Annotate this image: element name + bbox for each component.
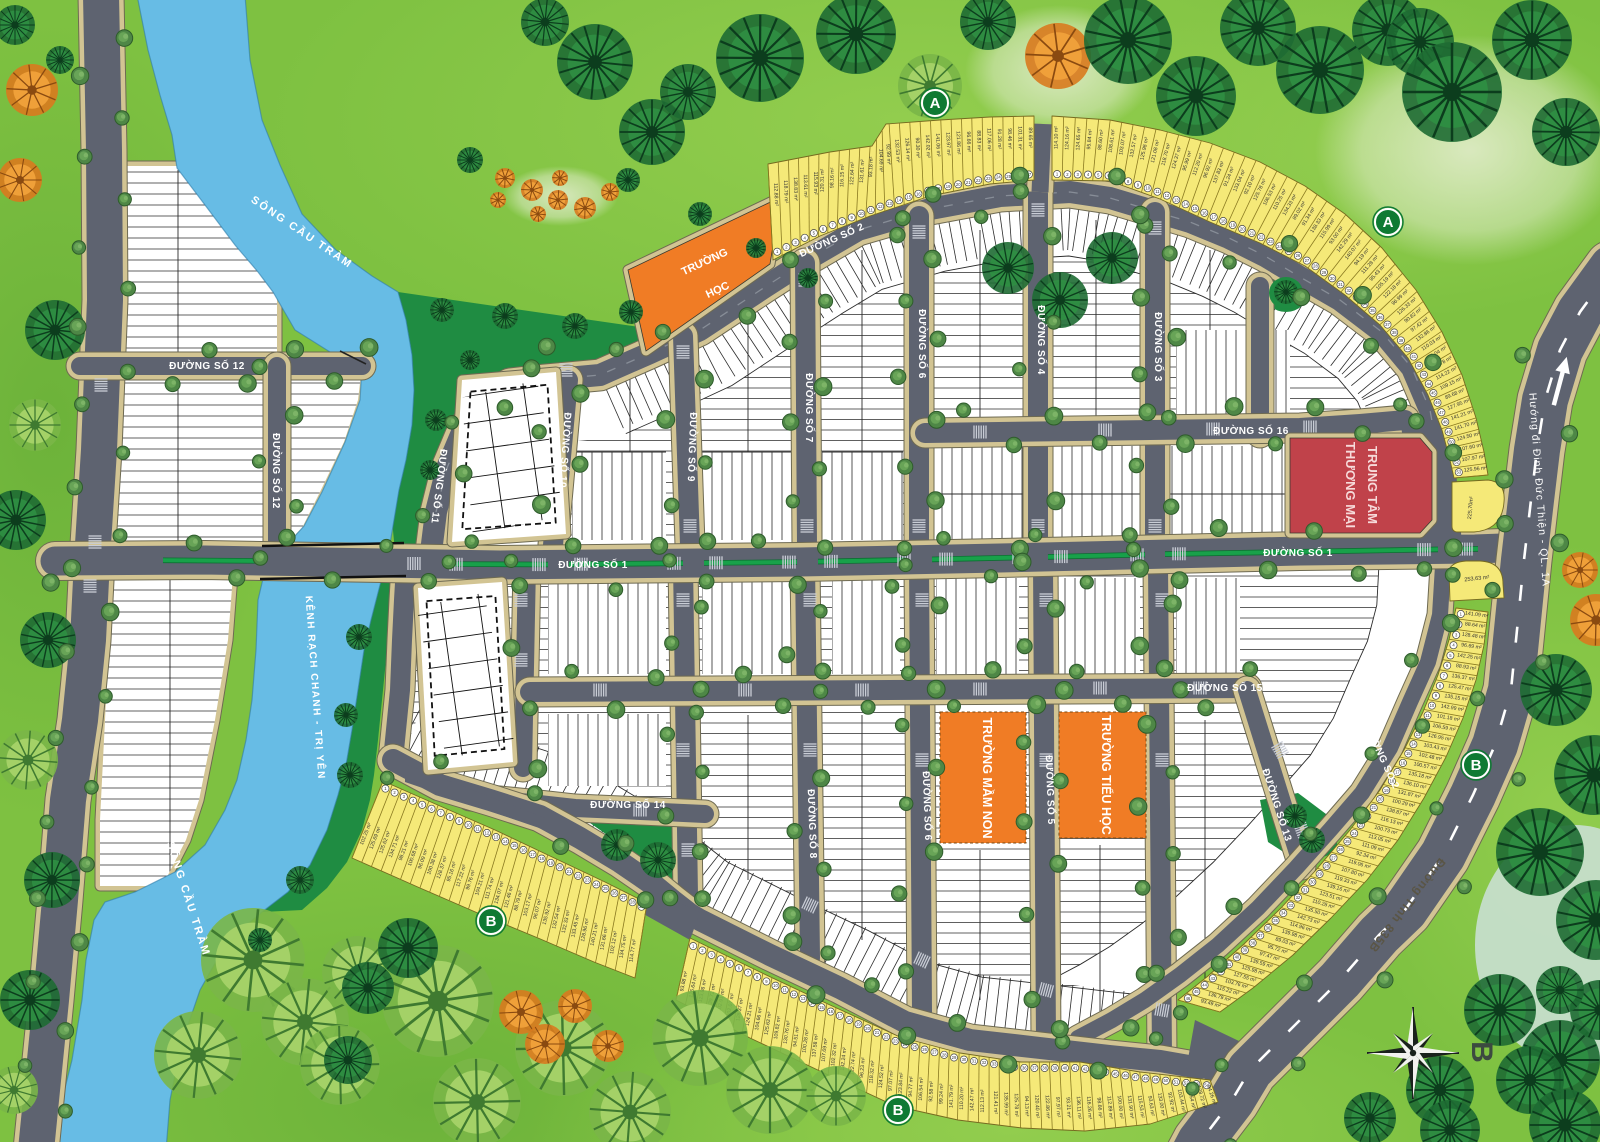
svg-text:23: 23	[986, 176, 991, 181]
svg-text:23: 23	[1268, 239, 1273, 244]
svg-text:20: 20	[865, 1026, 870, 1031]
svg-text:24: 24	[1352, 831, 1357, 836]
svg-text:20: 20	[1378, 797, 1383, 802]
svg-text:ĐƯỜNG SỐ 1: ĐƯỜNG SỐ 1	[558, 557, 628, 571]
svg-text:15: 15	[1406, 751, 1411, 756]
svg-text:46: 46	[1435, 400, 1440, 405]
svg-text:112.13 m²: 112.13 m²	[980, 1089, 986, 1112]
svg-text:24: 24	[996, 175, 1001, 180]
svg-text:42: 42	[1417, 363, 1422, 368]
svg-text:15: 15	[819, 1005, 824, 1010]
svg-text:28: 28	[942, 1052, 947, 1057]
svg-text:38: 38	[1250, 940, 1255, 945]
svg-text:B: B	[893, 1102, 904, 1119]
svg-text:11: 11	[783, 988, 788, 993]
svg-text:B: B	[1471, 757, 1482, 774]
svg-text:40: 40	[1235, 955, 1240, 960]
svg-text:27: 27	[1305, 258, 1310, 263]
svg-text:21: 21	[966, 180, 971, 185]
svg-text:142.47 m²: 142.47 m²	[969, 1088, 975, 1112]
svg-text:104.69 m²: 104.69 m²	[877, 149, 883, 173]
svg-text:15: 15	[906, 195, 911, 200]
svg-text:114.10 m²: 114.10 m²	[1053, 126, 1059, 149]
svg-text:122.64 m²: 122.64 m²	[849, 161, 856, 185]
svg-text:19: 19	[1230, 223, 1235, 228]
svg-text:27: 27	[932, 1050, 937, 1055]
svg-text:13: 13	[494, 835, 499, 840]
svg-text:39: 39	[1399, 338, 1404, 343]
svg-text:17: 17	[838, 1013, 843, 1018]
svg-text:12: 12	[792, 992, 797, 997]
svg-text:14: 14	[1411, 742, 1416, 747]
svg-text:51: 51	[1174, 1079, 1179, 1084]
svg-text:141.06 m²: 141.06 m²	[934, 133, 941, 157]
svg-text:10: 10	[1430, 703, 1435, 708]
svg-text:39: 39	[1242, 948, 1247, 953]
svg-text:101.31 m²: 101.31 m²	[1017, 126, 1023, 150]
svg-text:117.06 m²: 117.06 m²	[986, 128, 992, 151]
svg-text:18: 18	[539, 856, 544, 861]
svg-text:97.97 m²: 97.97 m²	[1054, 1097, 1061, 1118]
svg-text:ĐƯỜNG SỐ 12: ĐƯỜNG SỐ 12	[169, 358, 245, 372]
svg-text:88.83 m²: 88.83 m²	[975, 130, 981, 151]
svg-text:32: 32	[982, 1060, 987, 1065]
svg-text:53: 53	[1456, 470, 1461, 475]
svg-text:142.02 m²: 142.02 m²	[924, 134, 931, 158]
svg-text:26: 26	[922, 1047, 927, 1052]
svg-text:110.20 m²: 110.20 m²	[959, 1086, 965, 1109]
svg-text:30: 30	[1310, 879, 1315, 884]
svg-text:ĐƯỜNG SỐ 1: ĐƯỜNG SỐ 1	[1263, 545, 1333, 559]
svg-text:121.86 m²: 121.86 m²	[955, 131, 962, 155]
svg-text:TRƯỜNG TIỂU HỌC: TRƯỜNG TIỂU HỌC	[1099, 715, 1114, 835]
svg-text:45: 45	[1113, 1071, 1118, 1076]
svg-text:40: 40	[1405, 346, 1410, 351]
svg-text:27: 27	[621, 895, 626, 900]
svg-text:11: 11	[869, 208, 874, 213]
svg-text:32: 32	[1346, 288, 1351, 293]
svg-text:18: 18	[847, 1018, 852, 1023]
svg-text:28: 28	[1313, 264, 1318, 269]
svg-text:121.41 m²: 121.41 m²	[992, 1091, 998, 1115]
svg-text:31: 31	[972, 1059, 977, 1064]
svg-text:41: 41	[1073, 1066, 1078, 1071]
svg-text:96.66 m²: 96.66 m²	[965, 131, 972, 152]
svg-text:99.24 m²: 99.24 m²	[938, 1083, 945, 1104]
svg-text:22: 22	[576, 873, 581, 878]
svg-text:23: 23	[893, 1039, 898, 1044]
svg-text:35: 35	[1273, 918, 1278, 923]
svg-text:29: 29	[952, 1055, 957, 1060]
svg-text:90.30 m²: 90.30 m²	[914, 137, 921, 158]
svg-text:27: 27	[1331, 855, 1336, 860]
svg-text:138.83 m²: 138.83 m²	[792, 177, 799, 201]
svg-text:38: 38	[1392, 330, 1397, 335]
svg-text:29: 29	[1322, 270, 1327, 275]
svg-text:115.93 m²: 115.93 m²	[812, 172, 818, 195]
svg-text:98.16 m²: 98.16 m²	[829, 167, 835, 188]
svg-text:ĐƯỜNG SỐ 16: ĐƯỜNG SỐ 16	[1213, 423, 1289, 437]
svg-text:11: 11	[475, 826, 480, 831]
svg-text:19: 19	[1384, 788, 1389, 793]
svg-text:49: 49	[1153, 1077, 1158, 1082]
svg-text:18: 18	[1221, 219, 1226, 224]
svg-text:91.28 m²: 91.28 m²	[996, 129, 1002, 150]
svg-text:10: 10	[1145, 186, 1150, 191]
svg-text:50: 50	[1449, 439, 1454, 444]
svg-text:98.46 m²: 98.46 m²	[1006, 128, 1012, 149]
svg-text:16: 16	[521, 848, 526, 853]
svg-text:ĐƯỜNG SỐ 15: ĐƯỜNG SỐ 15	[1187, 680, 1263, 694]
svg-text:33: 33	[1288, 903, 1293, 908]
svg-text:26: 26	[1296, 253, 1301, 258]
svg-text:28: 28	[1324, 864, 1329, 869]
svg-text:92.58 m²: 92.58 m²	[928, 1081, 935, 1102]
svg-text:24: 24	[594, 882, 599, 887]
svg-text:21: 21	[567, 869, 572, 874]
svg-text:43: 43	[1421, 372, 1426, 377]
svg-text:37: 37	[1258, 933, 1263, 938]
svg-text:94.77 m²: 94.77 m²	[908, 1076, 915, 1097]
svg-text:46: 46	[1186, 996, 1191, 1001]
svg-text:10: 10	[859, 211, 864, 216]
svg-text:43: 43	[1210, 976, 1215, 981]
svg-text:22: 22	[976, 178, 981, 183]
svg-text:34: 34	[1281, 911, 1286, 916]
svg-text:39: 39	[1052, 1066, 1057, 1071]
svg-text:125.78 m²: 125.78 m²	[1013, 1093, 1019, 1117]
svg-text:49: 49	[1446, 429, 1451, 434]
svg-text:14: 14	[897, 198, 902, 203]
svg-text:93.21 m²: 93.21 m²	[1064, 1097, 1071, 1118]
svg-text:TRƯỜNG MẦM NON: TRƯỜNG MẦM NON	[980, 717, 995, 838]
svg-text:45: 45	[1431, 391, 1436, 396]
svg-text:14: 14	[503, 839, 508, 844]
svg-text:A: A	[1383, 214, 1394, 231]
svg-text:106.54 m²: 106.54 m²	[918, 1077, 925, 1101]
svg-text:13: 13	[1174, 197, 1179, 202]
svg-text:21: 21	[1371, 805, 1376, 810]
svg-text:ĐƯỜNG SỐ 6: ĐƯỜNG SỐ 6	[916, 309, 930, 379]
svg-text:21: 21	[875, 1030, 880, 1035]
svg-text:20: 20	[1240, 227, 1245, 232]
svg-text:112.88 m²: 112.88 m²	[772, 183, 779, 206]
svg-text:120.31 m²: 120.31 m²	[820, 168, 826, 192]
svg-text:10: 10	[773, 983, 778, 988]
svg-text:120.40 m²: 120.40 m²	[1033, 1095, 1040, 1119]
svg-text:13: 13	[887, 201, 892, 206]
svg-text:26: 26	[612, 891, 617, 896]
svg-text:19: 19	[856, 1022, 861, 1027]
svg-text:141.79 m²: 141.79 m²	[949, 1084, 956, 1108]
svg-text:32: 32	[1296, 895, 1301, 900]
svg-text:38: 38	[1042, 1066, 1047, 1071]
svg-text:12: 12	[878, 204, 883, 209]
svg-text:12: 12	[1165, 193, 1170, 198]
svg-text:92.99 m²: 92.99 m²	[884, 144, 891, 165]
svg-text:47: 47	[1133, 1075, 1138, 1080]
svg-text:46: 46	[1123, 1073, 1128, 1078]
svg-text:17: 17	[530, 852, 535, 857]
svg-text:ĐƯỜNG SỐ 4: ĐƯỜNG SỐ 4	[1035, 305, 1049, 375]
svg-text:44: 44	[1202, 983, 1207, 988]
svg-text:29: 29	[1317, 872, 1322, 877]
svg-text:30: 30	[962, 1057, 967, 1062]
svg-text:22: 22	[1259, 235, 1264, 240]
svg-text:37: 37	[1385, 322, 1390, 327]
svg-text:135.99 m²: 135.99 m²	[1002, 1092, 1008, 1116]
svg-text:20: 20	[557, 865, 562, 870]
svg-text:16: 16	[1202, 210, 1207, 215]
svg-text:ĐƯỜNG SỐ 14: ĐƯỜNG SỐ 14	[590, 797, 666, 811]
svg-text:36: 36	[1378, 315, 1383, 320]
svg-text:94.13 m²: 94.13 m²	[1023, 1096, 1030, 1117]
svg-text:124.16 m²: 124.16 m²	[1064, 126, 1071, 150]
svg-text:19: 19	[548, 860, 553, 865]
svg-text:ĐƯỜNG SỐ 12: ĐƯỜNG SỐ 12	[270, 433, 284, 509]
svg-text:47: 47	[1439, 410, 1444, 415]
svg-text:ĐƯỜNG SỐ 3: ĐƯỜNG SỐ 3	[1152, 312, 1166, 382]
svg-text:116.15 m²: 116.15 m²	[839, 164, 846, 187]
svg-text:118.79 m²: 118.79 m²	[782, 180, 789, 203]
svg-text:20: 20	[956, 182, 961, 187]
svg-text:23: 23	[585, 878, 590, 883]
svg-text:16: 16	[916, 191, 921, 196]
svg-text:19: 19	[946, 184, 951, 189]
svg-text:37: 37	[1032, 1066, 1037, 1071]
svg-text:25: 25	[603, 886, 608, 891]
svg-text:113.61 m²: 113.61 m²	[802, 174, 808, 197]
svg-text:122.86 m²: 122.86 m²	[1044, 1095, 1051, 1119]
svg-text:A: A	[930, 95, 941, 112]
svg-text:36: 36	[1022, 1065, 1027, 1070]
svg-text:ĐƯỜNG SỐ 7: ĐƯỜNG SỐ 7	[803, 373, 817, 443]
svg-text:12: 12	[485, 831, 490, 836]
svg-text:36: 36	[1266, 926, 1271, 931]
svg-text:41: 41	[1411, 354, 1416, 359]
svg-text:11: 11	[1425, 713, 1430, 718]
svg-text:48: 48	[1143, 1076, 1148, 1081]
svg-text:40: 40	[1063, 1066, 1068, 1071]
svg-text:33: 33	[992, 1062, 997, 1067]
svg-text:44: 44	[1426, 381, 1431, 386]
svg-text:93.18 m²: 93.18 m²	[868, 156, 875, 177]
svg-text:28: 28	[630, 900, 635, 905]
svg-text:89.65 m²: 89.65 m²	[1027, 127, 1033, 148]
svg-text:10: 10	[466, 822, 471, 827]
svg-text:B: B	[1465, 1041, 1498, 1063]
svg-text:30: 30	[1330, 276, 1335, 281]
svg-text:31: 31	[1338, 282, 1343, 287]
svg-text:11: 11	[1155, 189, 1160, 194]
svg-text:48: 48	[1443, 420, 1448, 425]
svg-text:35: 35	[1370, 308, 1375, 313]
svg-text:50: 50	[1163, 1078, 1168, 1083]
svg-text:42: 42	[1083, 1066, 1088, 1071]
svg-text:123.97 m²: 123.97 m²	[944, 132, 951, 156]
svg-text:14: 14	[1183, 202, 1188, 207]
svg-text:16: 16	[828, 1009, 833, 1014]
svg-text:25: 25	[912, 1045, 917, 1050]
svg-text:22: 22	[884, 1034, 889, 1039]
svg-text:15: 15	[512, 843, 517, 848]
svg-text:26: 26	[1338, 847, 1343, 852]
svg-text:TRUNG TÂM: TRUNG TÂM	[1365, 446, 1380, 524]
svg-text:45: 45	[1194, 989, 1199, 994]
svg-text:B: B	[486, 913, 497, 930]
svg-text:15: 15	[1193, 206, 1198, 211]
svg-text:21: 21	[1249, 231, 1254, 236]
svg-text:THƯƠNG MẠI: THƯƠNG MẠI	[1343, 442, 1358, 528]
svg-text:13: 13	[801, 996, 806, 1001]
svg-text:16: 16	[1401, 760, 1406, 765]
svg-text:17: 17	[1211, 215, 1216, 220]
svg-text:25: 25	[1345, 839, 1350, 844]
svg-text:31: 31	[1303, 887, 1308, 892]
